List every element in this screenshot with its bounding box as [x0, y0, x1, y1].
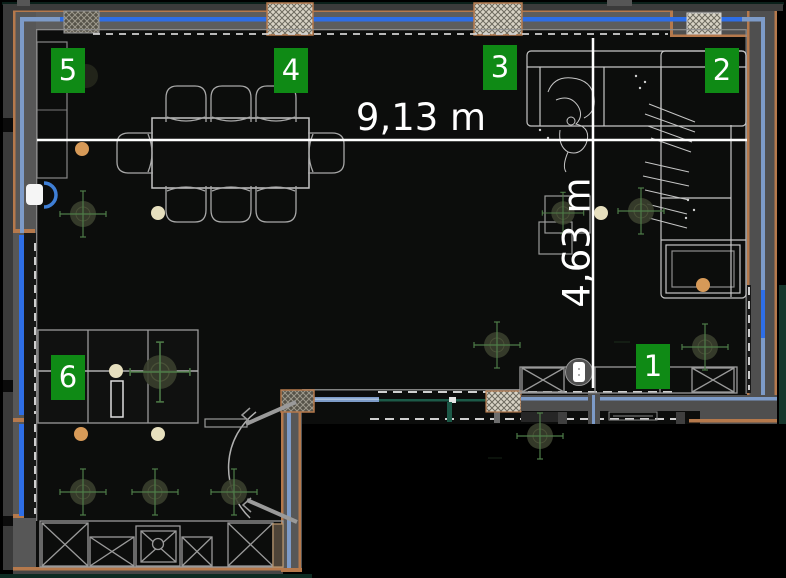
kitchen-bottom-wall: [0, 567, 312, 578]
floorplan-drawing: [0, 0, 786, 578]
marker-6[interactable]: 6: [51, 355, 85, 400]
width-dimension-label: 9,13 m: [336, 96, 506, 139]
marker-2[interactable]: 2: [705, 48, 739, 93]
marker-1[interactable]: 1: [636, 344, 670, 389]
bottom-right-wall: [521, 394, 777, 424]
marker-3[interactable]: 3: [483, 45, 517, 90]
marker-4[interactable]: 4: [274, 48, 308, 93]
floorplan-canvas: 9,13 m 4,63 m 1 2 3 4 5 6: [0, 0, 786, 578]
kitchen-right-wall: [281, 411, 302, 572]
depth-dimension-label: 4,63 m: [556, 158, 599, 328]
smart-plug-icon[interactable]: [566, 359, 593, 386]
marker-5[interactable]: 5: [51, 48, 85, 93]
